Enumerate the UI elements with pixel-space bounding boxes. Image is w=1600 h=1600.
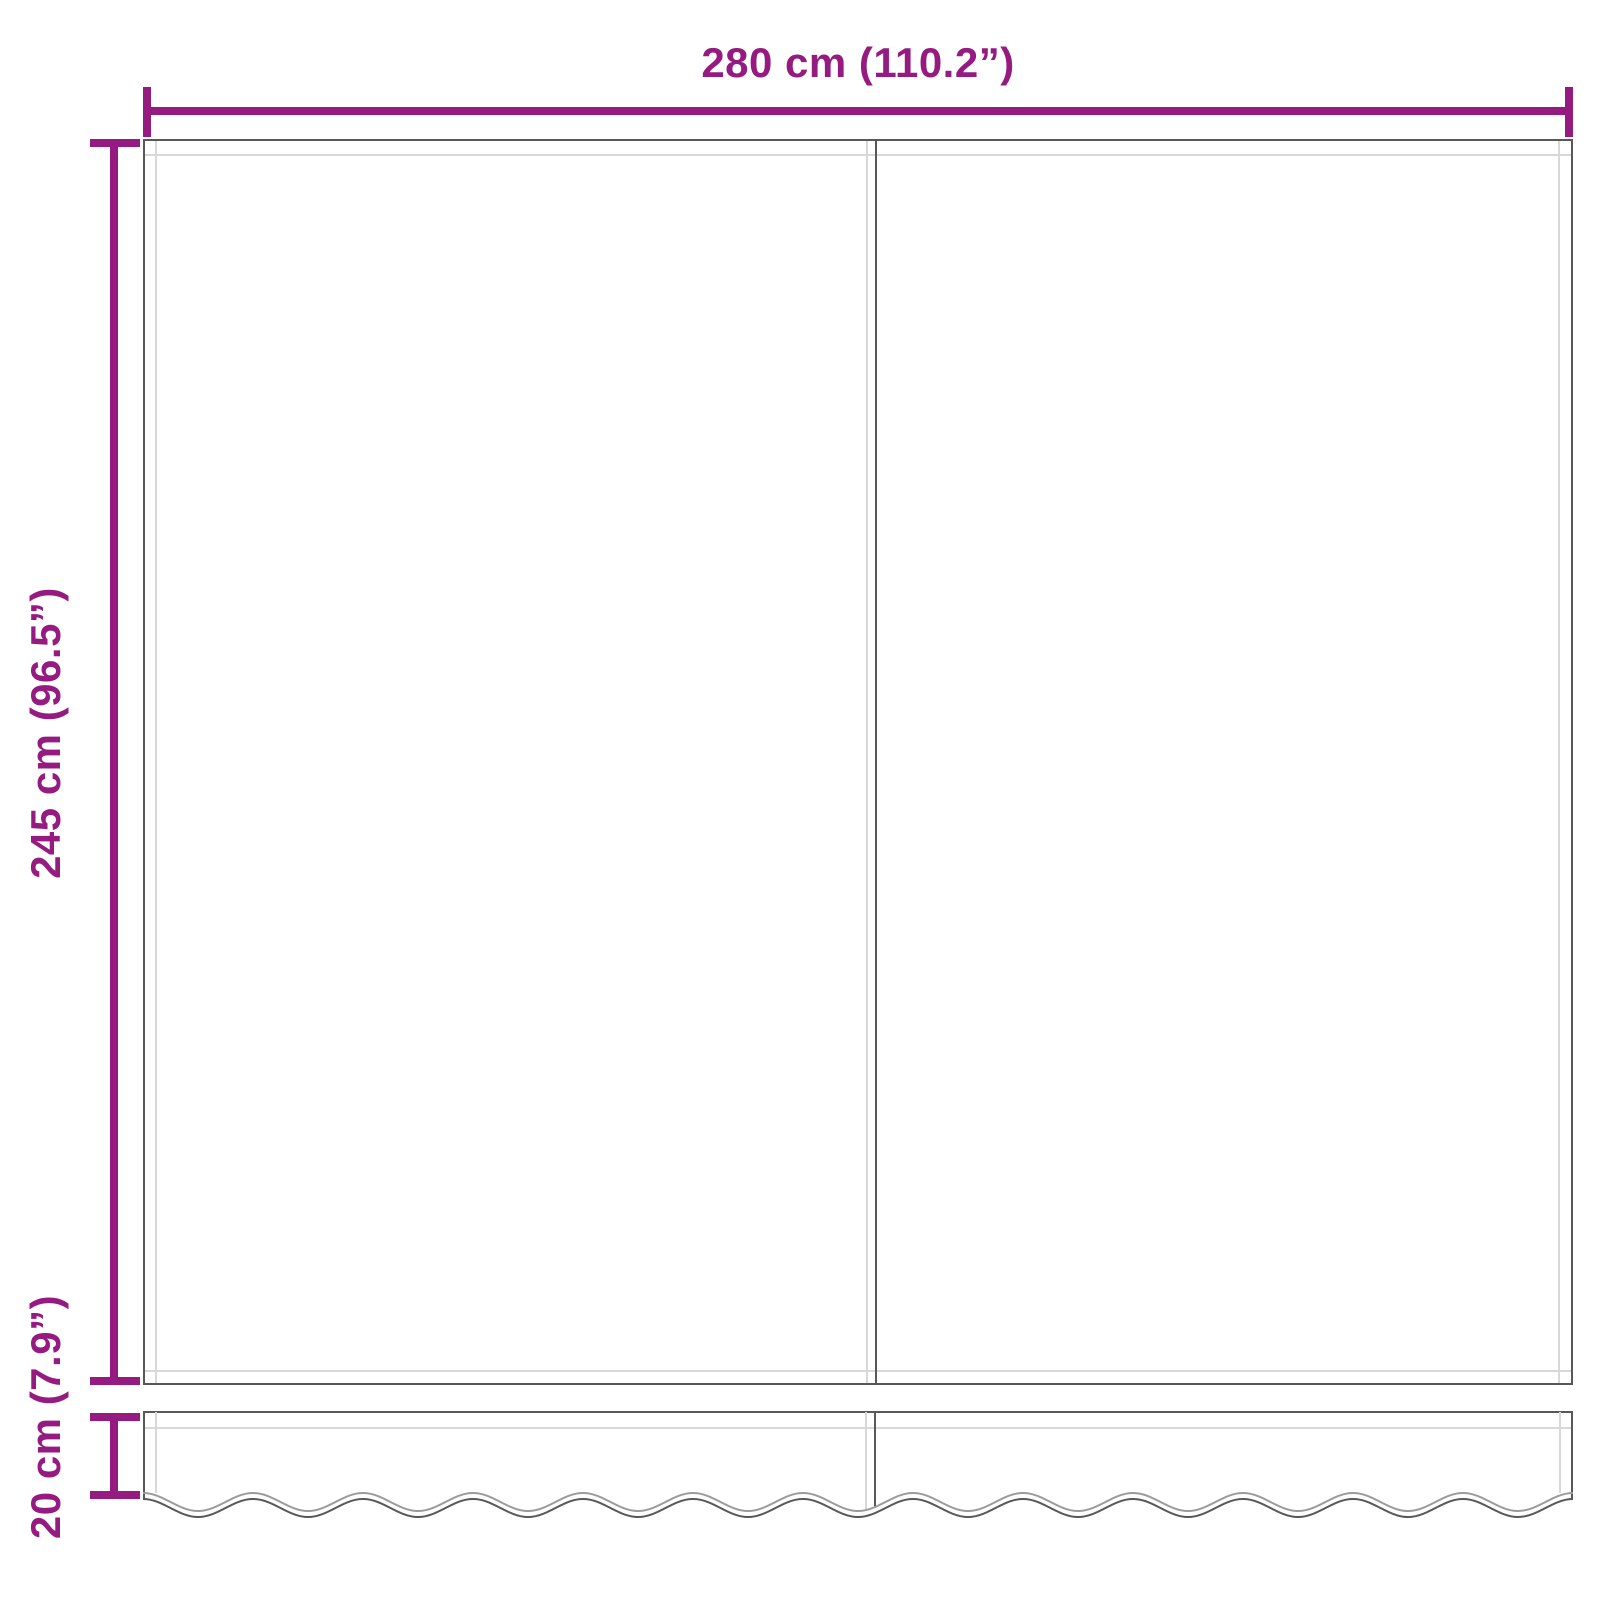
- height-dimension-label: 245 cm (96.5”): [25, 587, 67, 879]
- canvas-right-seam-line: [1558, 141, 1560, 1383]
- valance-dimension-label: 20 cm (7.9”): [25, 1295, 67, 1539]
- awning-dimension-diagram: 280 cm (110.2”) 245 cm (96.5”) 20 cm (7.…: [0, 0, 1600, 1600]
- canvas-bottom-seam-line: [145, 1370, 1571, 1372]
- width-dimension-label: 280 cm (110.2”): [143, 42, 1573, 84]
- valance-dimension-cap-bottom: [90, 1491, 140, 1499]
- valance-scallop-upper: [143, 1493, 1573, 1511]
- height-dimension-cap-bottom: [90, 1377, 140, 1385]
- canvas-left-seam-line: [155, 141, 157, 1383]
- canvas-center-seam-line: [866, 141, 868, 1383]
- width-dimension-cap-right: [1565, 87, 1573, 137]
- canvas-top-seam-line: [145, 154, 1571, 156]
- awning-canvas: [143, 139, 1573, 1385]
- canvas-panel-divider: [875, 141, 877, 1383]
- valance-dimension-line: [110, 1413, 118, 1499]
- valance-strip: [143, 1411, 1573, 1523]
- height-dimension-line: [110, 139, 118, 1385]
- valance-scallop-lower: [143, 1499, 1573, 1517]
- width-dimension-line: [143, 107, 1573, 115]
